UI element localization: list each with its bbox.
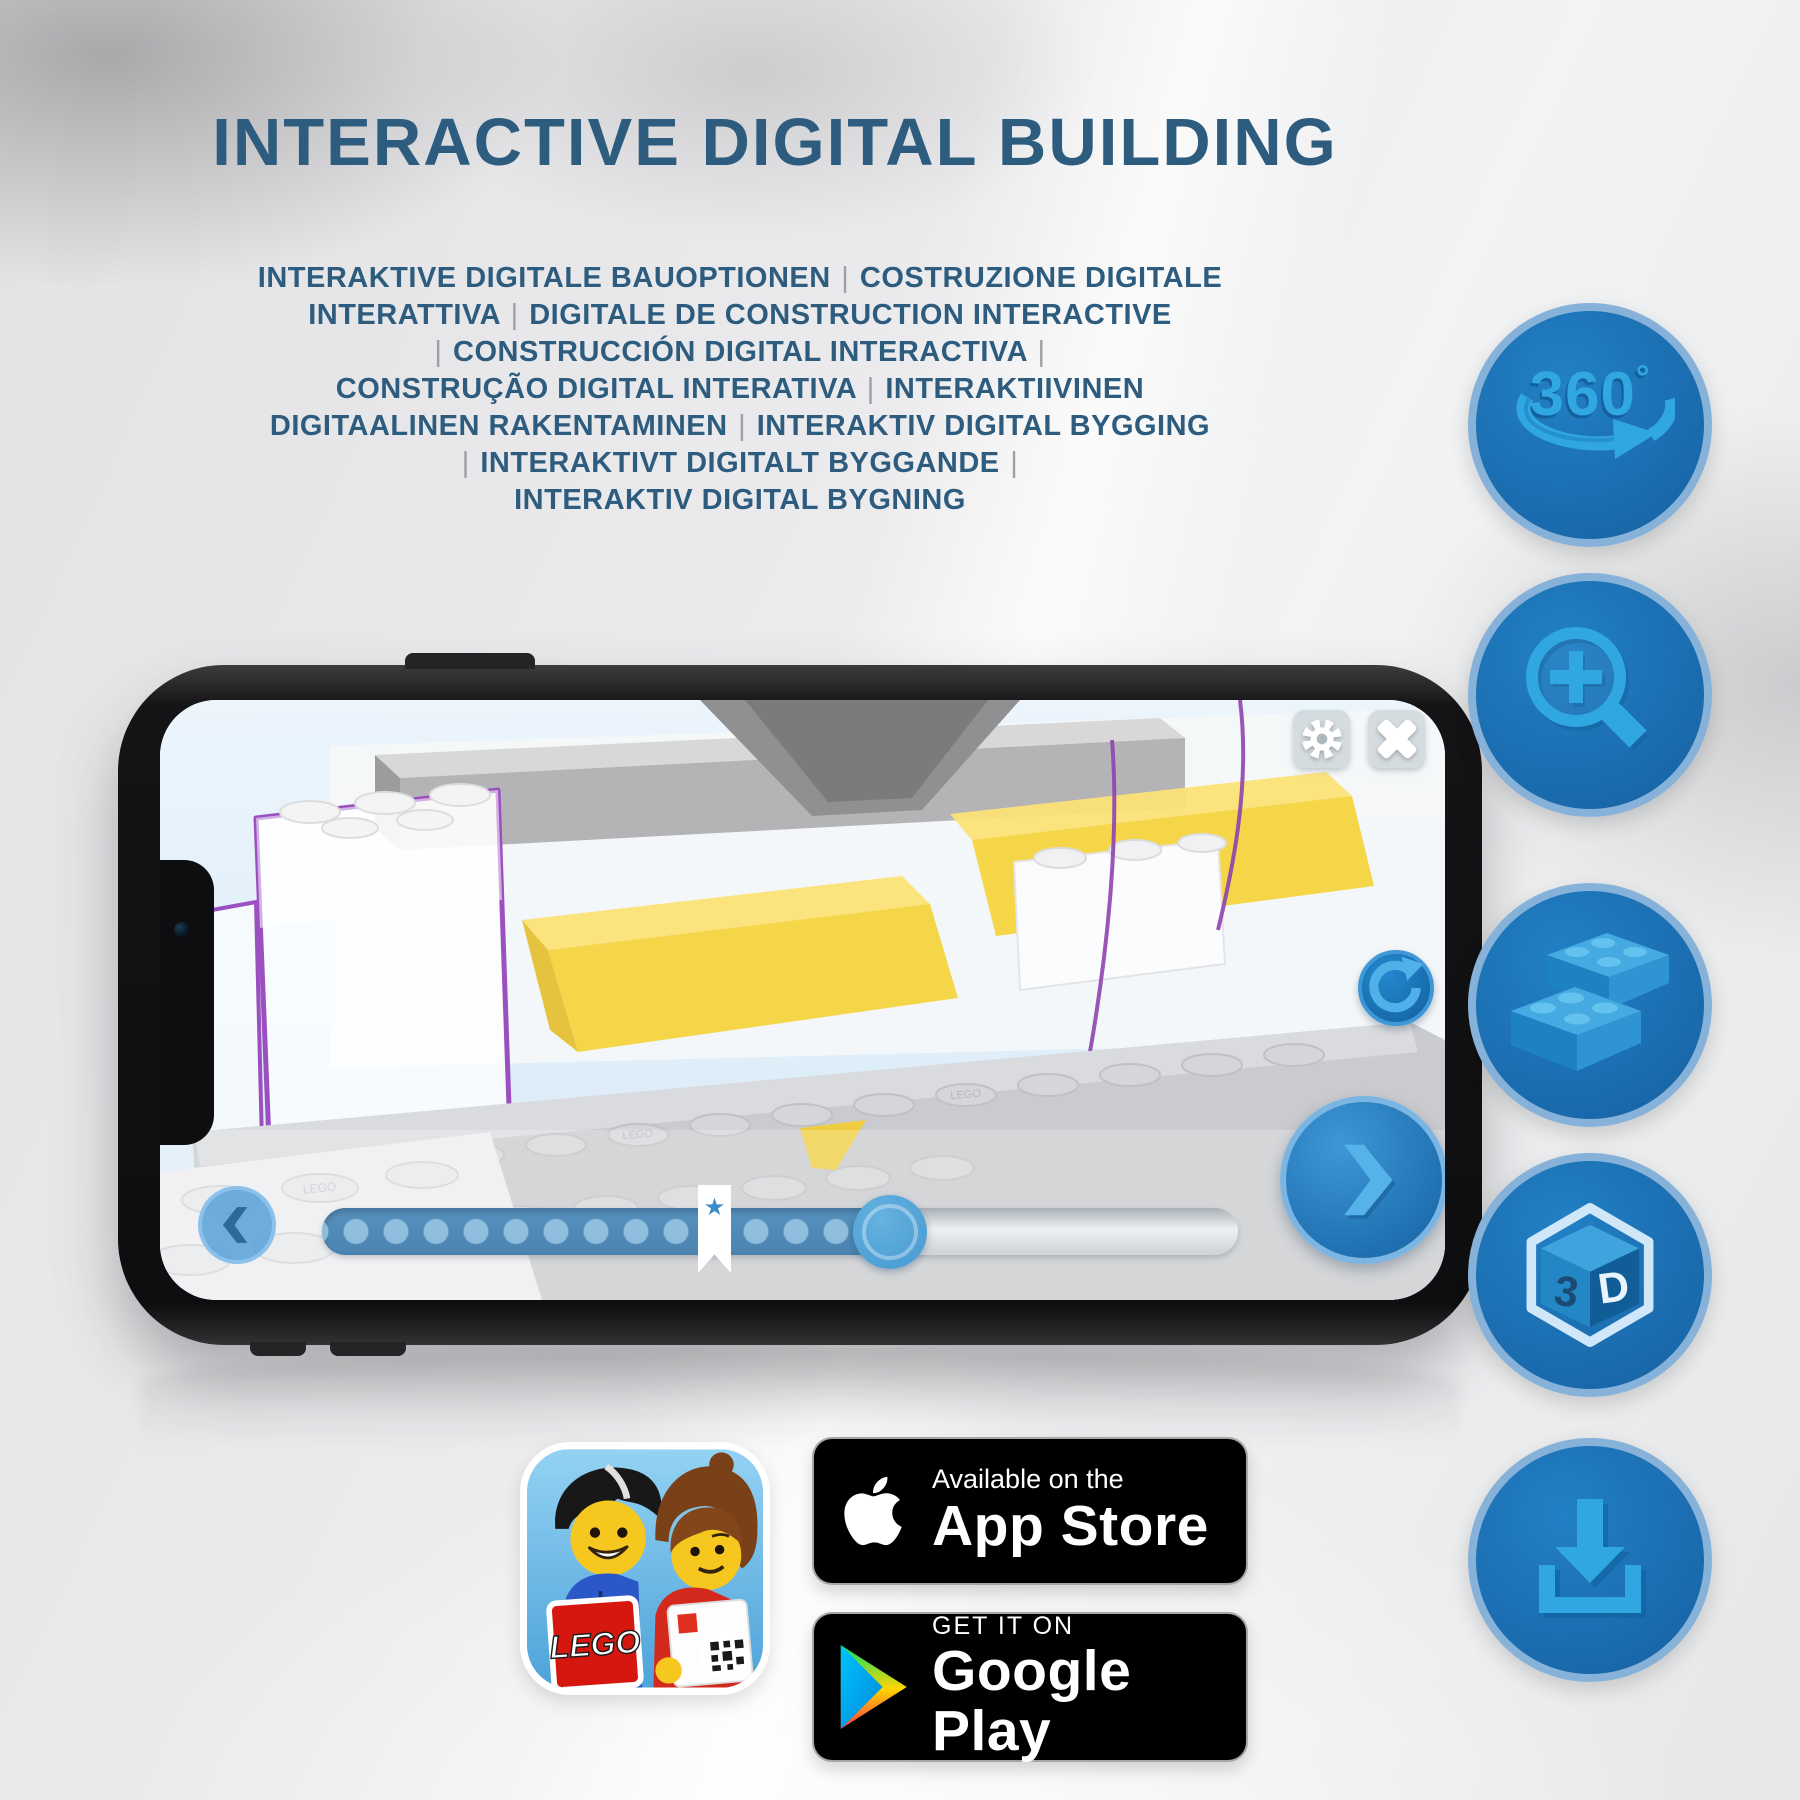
subtitle-line: | INTERAKTIVT DIGITALT BYGGANDE | xyxy=(60,445,1420,482)
google-play-tagline: GET IT ON xyxy=(932,1613,1246,1639)
app-screen: LEGO LEGO LEGO xyxy=(160,700,1445,1300)
google-play-badge[interactable]: GET IT ON Google Play xyxy=(812,1612,1248,1762)
download-icon xyxy=(1515,1485,1665,1635)
progress-fill xyxy=(322,1208,914,1255)
apple-icon xyxy=(814,1472,932,1550)
build-progress-slider[interactable] xyxy=(322,1208,1238,1255)
lego-app-icon[interactable]: LEGO xyxy=(520,1442,770,1695)
camera-dot xyxy=(174,922,189,937)
gear-icon xyxy=(1293,710,1351,768)
chevron-left-icon xyxy=(205,1193,269,1257)
feature-360-rotation-icon: 360° xyxy=(1468,303,1712,547)
chevron-right-icon xyxy=(1309,1125,1419,1235)
star-icon xyxy=(698,1193,731,1222)
subtitle-line: CONSTRUÇÃO DIGITAL INTERATIVA | INTERAKT… xyxy=(60,371,1420,408)
power-button xyxy=(405,653,535,669)
next-step-button[interactable] xyxy=(1280,1096,1445,1264)
rotate-arrow-icon xyxy=(1505,389,1675,461)
lego-logo-text: LEGO xyxy=(548,1623,641,1665)
magnifier-plus-icon xyxy=(1510,615,1670,775)
close-icon xyxy=(1368,710,1426,768)
subtitle-line: INTERATTIVA | DIGITALE DE CONSTRUCTION I… xyxy=(60,297,1420,334)
subtitle-line: INTERAKTIV DIGITAL BYGNING xyxy=(60,482,1420,519)
google-play-icon xyxy=(814,1642,932,1732)
phone-mockup: LEGO LEGO LEGO xyxy=(118,665,1482,1345)
app-store-title: App Store xyxy=(932,1497,1209,1557)
google-play-title: Google Play xyxy=(932,1642,1246,1762)
feature-3d-view-icon: 3 D xyxy=(1468,1153,1712,1397)
phone-shadow xyxy=(140,1346,1460,1486)
close-button[interactable] xyxy=(1368,710,1425,768)
3d-right-label: D xyxy=(1595,1262,1632,1314)
feature-download-icon xyxy=(1468,1438,1712,1682)
rotate-icon xyxy=(1361,953,1431,1023)
3d-cube-icon: 3 D xyxy=(1510,1195,1670,1355)
feature-bricks-icon xyxy=(1468,883,1712,1127)
page-title: INTERACTIVE DIGITAL BUILDING xyxy=(0,104,1550,181)
subtitle-line: DIGITAALINEN RAKENTAMINEN | INTERAKTIV D… xyxy=(60,408,1420,445)
camera-notch xyxy=(160,860,214,1145)
previous-step-button[interactable] xyxy=(198,1186,276,1264)
volume-button xyxy=(250,1342,306,1356)
lego-bricks-icon xyxy=(1505,925,1675,1085)
app-store-tagline: Available on the xyxy=(932,1465,1209,1493)
slider-handle[interactable] xyxy=(853,1195,927,1269)
rotate-reset-button[interactable] xyxy=(1358,950,1434,1026)
settings-button[interactable] xyxy=(1293,710,1350,768)
subtitle-block: INTERAKTIVE DIGITALE BAUOPTIONEN | COSTR… xyxy=(60,260,1420,519)
lego-app-artwork: LEGO xyxy=(527,1449,763,1688)
app-store-badge[interactable]: Available on the App Store xyxy=(812,1437,1248,1585)
subtitle-line: INTERAKTIVE DIGITALE BAUOPTIONEN | COSTR… xyxy=(60,260,1420,297)
poster: INTERACTIVE DIGITAL BUILDING INTERAKTIVE… xyxy=(0,0,1800,1800)
feature-zoom-icon xyxy=(1468,573,1712,817)
subtitle-line: | CONSTRUCCIÓN DIGITAL INTERACTIVA | xyxy=(60,334,1420,371)
volume-button xyxy=(330,1342,406,1356)
